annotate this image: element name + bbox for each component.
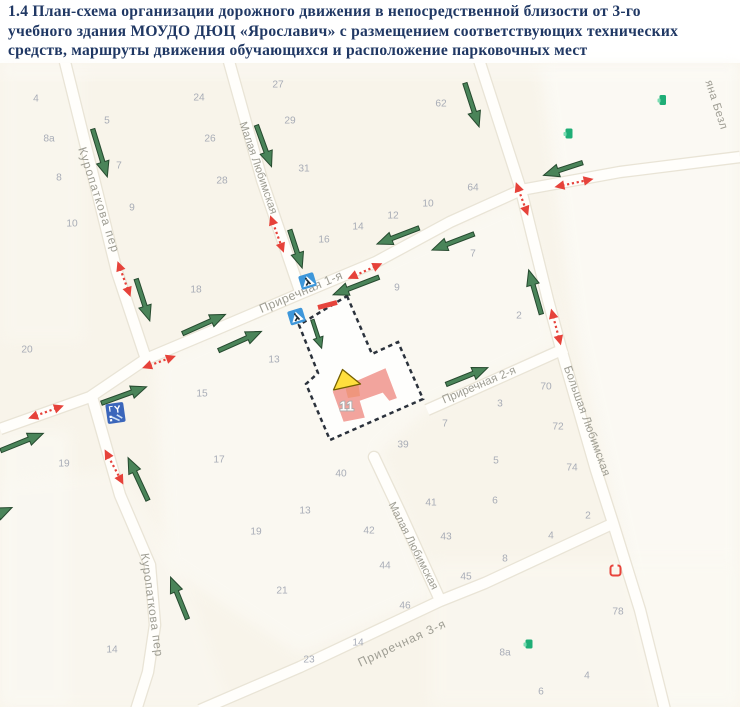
svg-text:13: 13: [268, 355, 280, 366]
svg-text:29: 29: [284, 116, 296, 127]
svg-text:10: 10: [66, 219, 78, 230]
svg-text:5: 5: [104, 116, 110, 127]
svg-text:13: 13: [299, 506, 311, 517]
svg-text:7: 7: [116, 161, 122, 172]
svg-text:8а: 8а: [499, 648, 511, 659]
svg-text:11: 11: [340, 399, 355, 414]
svg-text:70: 70: [540, 382, 552, 393]
svg-text:8: 8: [502, 554, 508, 565]
svg-text:26: 26: [204, 134, 216, 145]
svg-text:2: 2: [585, 511, 591, 522]
svg-text:14: 14: [352, 638, 364, 649]
svg-text:14: 14: [106, 645, 118, 656]
svg-text:62: 62: [435, 99, 447, 110]
svg-text:7: 7: [470, 249, 476, 260]
svg-text:6: 6: [538, 687, 544, 698]
svg-text:44: 44: [379, 561, 391, 572]
svg-text:9: 9: [129, 203, 135, 214]
svg-text:40: 40: [335, 469, 347, 480]
svg-text:31: 31: [298, 164, 310, 175]
svg-text:23: 23: [303, 655, 315, 666]
svg-text:3: 3: [497, 399, 503, 410]
svg-text:20: 20: [21, 345, 33, 356]
svg-text:46: 46: [399, 601, 411, 612]
svg-text:74: 74: [566, 463, 578, 474]
svg-text:28: 28: [216, 176, 228, 187]
svg-text:18: 18: [190, 285, 202, 296]
svg-text:4: 4: [584, 671, 590, 682]
svg-text:17: 17: [213, 455, 225, 466]
svg-text:24: 24: [193, 93, 205, 104]
svg-text:12: 12: [387, 211, 399, 222]
svg-text:19: 19: [250, 527, 262, 538]
svg-text:39: 39: [397, 440, 409, 451]
svg-text:16: 16: [318, 235, 330, 246]
svg-text:78: 78: [612, 607, 624, 618]
svg-text:5: 5: [493, 456, 499, 467]
svg-text:21: 21: [276, 586, 288, 597]
svg-text:45: 45: [460, 572, 472, 583]
svg-text:27: 27: [272, 80, 284, 91]
svg-text:8а: 8а: [43, 134, 55, 145]
svg-text:19: 19: [58, 459, 70, 470]
svg-text:42: 42: [363, 526, 375, 537]
svg-text:14: 14: [352, 222, 364, 233]
svg-text:10: 10: [422, 199, 434, 210]
svg-text:64: 64: [467, 183, 479, 194]
svg-text:41: 41: [425, 498, 437, 509]
svg-text:7: 7: [442, 419, 448, 430]
svg-text:72: 72: [552, 422, 564, 433]
svg-text:4: 4: [548, 531, 554, 542]
svg-text:2: 2: [516, 311, 522, 322]
svg-text:6: 6: [492, 496, 498, 507]
svg-text:43: 43: [440, 532, 452, 543]
svg-text:8: 8: [56, 173, 62, 184]
svg-text:15: 15: [196, 389, 208, 400]
svg-text:9: 9: [394, 283, 400, 294]
svg-text:4: 4: [33, 94, 39, 105]
